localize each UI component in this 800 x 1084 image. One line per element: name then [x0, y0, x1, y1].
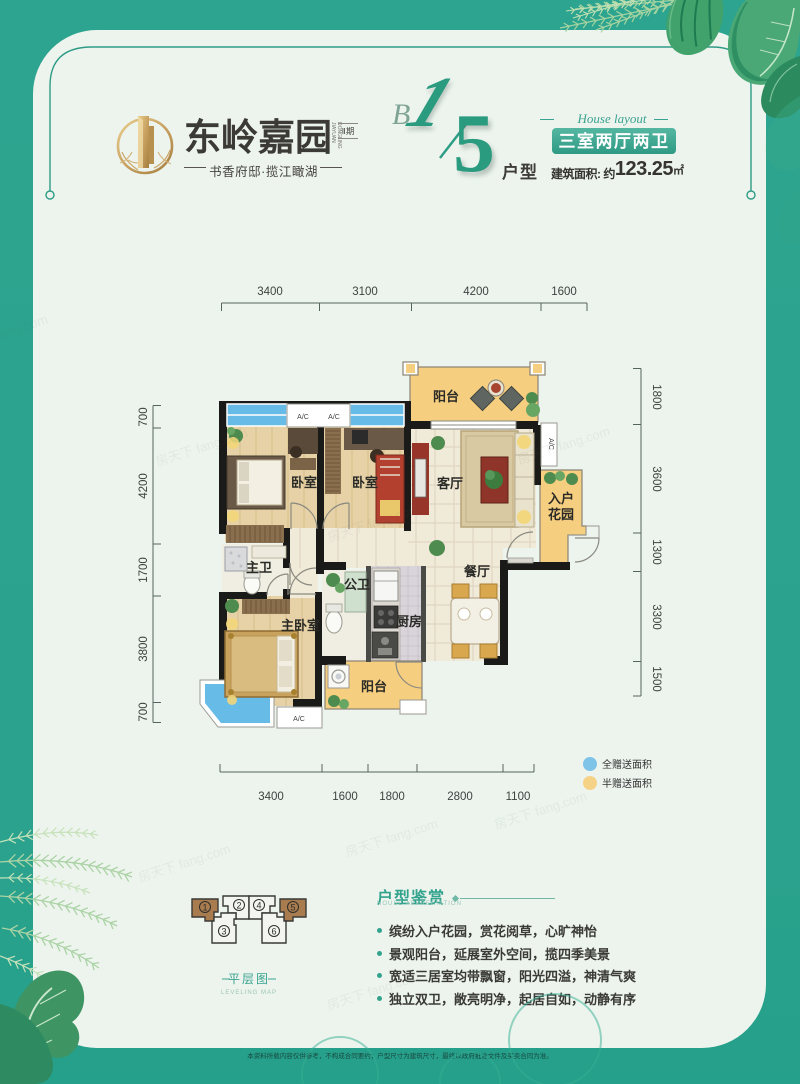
- svg-text:房天下 fang.com: 房天下 fang.com: [516, 423, 612, 467]
- svg-text:房天下 fang.com: 房天下 fang.com: [0, 311, 50, 355]
- svg-text:房天下 fang.com: 房天下 fang.com: [325, 501, 421, 545]
- svg-text:房天下 fang.com: 房天下 fang.com: [344, 816, 440, 860]
- svg-text:房天下 fang.com: 房天下 fang.com: [492, 788, 588, 832]
- svg-text:房天下 fang.com: 房天下 fang.com: [154, 425, 250, 469]
- svg-text:房天下 fang.com: 房天下 fang.com: [136, 841, 232, 885]
